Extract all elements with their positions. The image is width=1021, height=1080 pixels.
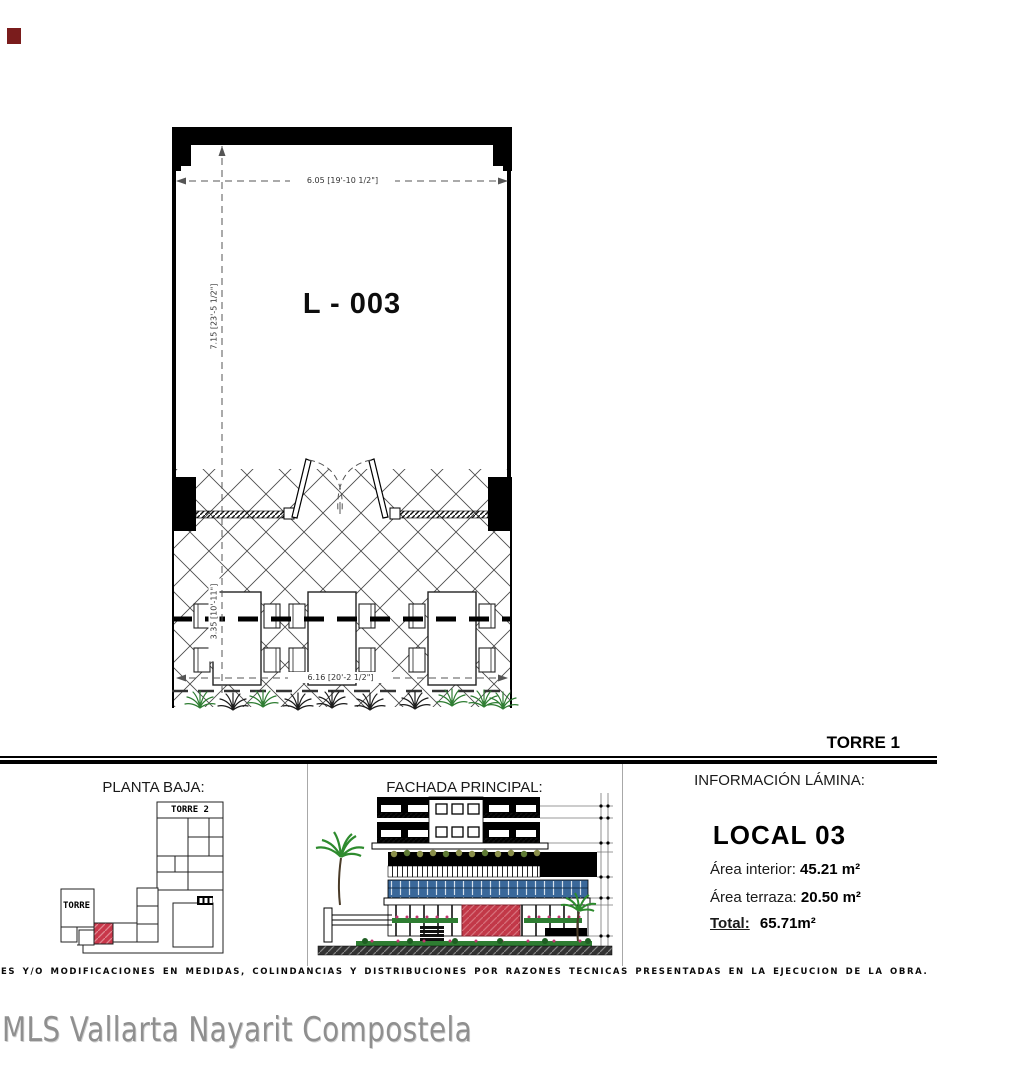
elevation-drawing [316, 793, 613, 955]
floor-plan-drawing [172, 127, 518, 710]
header-rule [0, 756, 937, 764]
unit-number-label: L - 003 [272, 288, 432, 321]
dim-top-label: 6.05 [19'-10 1/2"] [290, 175, 395, 186]
info-value-interior: 45.21 m² [800, 861, 860, 878]
disclaimer-text: ES Y/O MODIFICACIONES EN MEDIDAS, COLIND… [1, 967, 1021, 977]
section-title-fachada: FACHADA PRINCIPAL: [307, 779, 622, 796]
divider-2 [622, 764, 623, 966]
info-value-terraza: 20.50 m² [801, 889, 861, 906]
torre-header: TORRE 1 [760, 733, 900, 753]
ground-strip [318, 946, 612, 955]
local-title: LOCAL 03 [622, 820, 937, 851]
palm-tree-left [339, 858, 341, 905]
section-title-informacion: INFORMACIÓN LÁMINA: [622, 772, 937, 789]
info-label-terraza: Área terraza: [710, 889, 797, 906]
dim-bottom-label: 6.16 [20'-2 1/2"] [288, 672, 393, 683]
info-label-interior: Área interior: [710, 861, 796, 878]
info-value-total: 65.71m² [760, 915, 816, 932]
sheet-page: L - 003 6.05 [19'-10 1/2"] 7.15 [23'-5 1… [0, 0, 1021, 1080]
watermark-text: MLS Vallarta Nayarit Compostela [2, 1010, 472, 1050]
dim-terrace-left-label: 3.35 [10'-11"] [209, 562, 220, 662]
key-plan-drawing [61, 802, 223, 953]
dim-left-label: 7.15 [23'-5 1/2"] [209, 262, 220, 372]
section-title-planta-baja: PLANTA BAJA: [0, 779, 307, 796]
drawings-layer [0, 0, 1021, 1080]
keyplan-torre2-label: TORRE 2 [157, 805, 223, 815]
info-row-total: Total: 65.71m² [710, 915, 816, 932]
info-row-terraza: Área terraza: 20.50 m² [710, 889, 861, 906]
keyplan-torre1-label: TORRE 1 [63, 901, 93, 911]
info-row-interior: Área interior: 45.21 m² [710, 861, 860, 878]
info-label-total: Total: [710, 915, 750, 932]
